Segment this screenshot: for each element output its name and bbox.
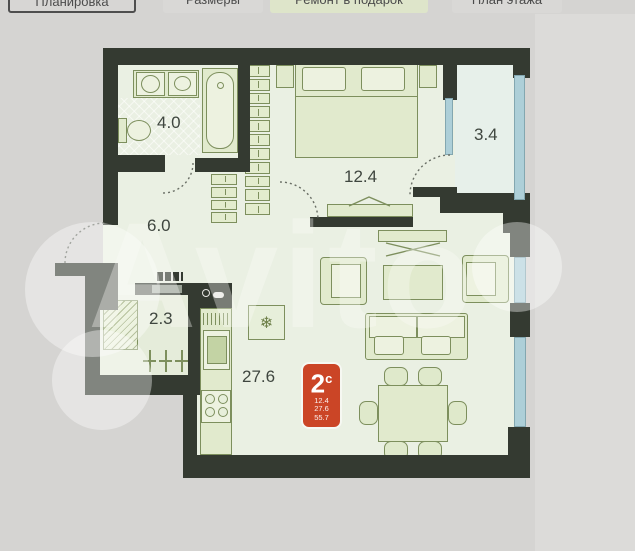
tab-renovation-gift[interactable]: Ремонт в подарок <box>270 0 428 13</box>
room-label-bathroom: 4.0 <box>157 113 181 133</box>
floorplan-photo[interactable]: Планировка Размеры Ремонт в подарок План… <box>0 0 635 551</box>
room-label-kitchen-living: 27.6 <box>242 367 275 387</box>
tab-layout[interactable]: Планировка <box>8 0 136 13</box>
watermark-circle <box>472 222 562 312</box>
room-label-wardrobe: 2.3 <box>149 309 173 329</box>
room-label-hallway: 6.0 <box>147 216 171 236</box>
apartment-type-label: 2с <box>303 366 340 397</box>
badge-area-line: 55.7 <box>303 414 340 423</box>
watermark-circle <box>52 330 152 430</box>
apartment-type-badge: 2с 12.4 27.6 55.7 <box>303 364 340 427</box>
room-label-balcony: 3.4 <box>474 125 498 145</box>
room-label-bedroom: 12.4 <box>344 167 377 187</box>
tab-floor-plan[interactable]: План этажа <box>452 0 562 13</box>
tab-dimensions[interactable]: Размеры <box>163 0 263 13</box>
